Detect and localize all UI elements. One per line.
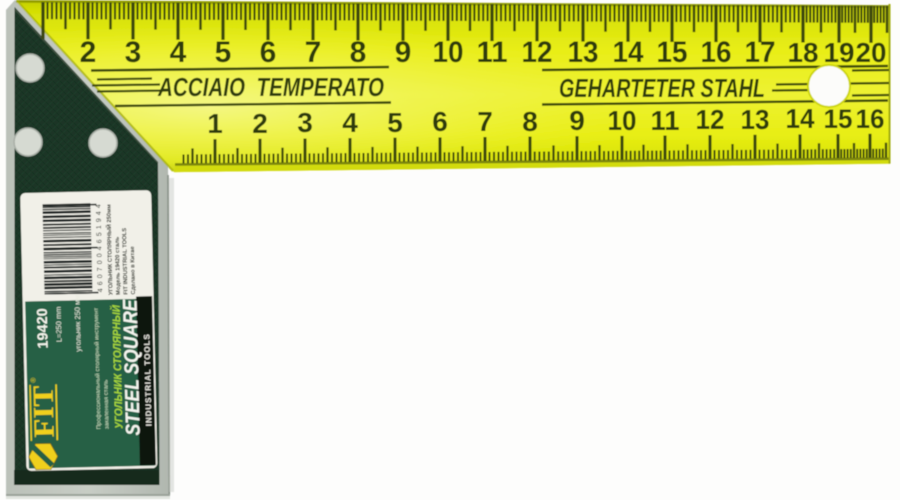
svg-text:4: 4 bbox=[170, 36, 187, 69]
svg-text:11: 11 bbox=[651, 105, 680, 136]
svg-text:10: 10 bbox=[433, 36, 464, 69]
svg-text:угольник 250 мм: угольник 250 мм bbox=[73, 294, 83, 351]
svg-text:13: 13 bbox=[568, 36, 599, 69]
svg-text:15: 15 bbox=[657, 36, 688, 69]
svg-text:8: 8 bbox=[522, 106, 538, 137]
svg-text:2: 2 bbox=[80, 36, 97, 69]
svg-text:Сделано в Китае: Сделано в Китае bbox=[130, 245, 137, 294]
svg-text:6: 6 bbox=[260, 36, 277, 69]
svg-text:19: 19 bbox=[824, 37, 855, 68]
svg-text:14: 14 bbox=[786, 103, 815, 134]
svg-text:STEEL SQUARE: STEEL SQUARE bbox=[120, 299, 145, 436]
svg-text:7: 7 bbox=[477, 106, 493, 137]
svg-text:12: 12 bbox=[696, 104, 725, 135]
svg-text:14: 14 bbox=[613, 36, 644, 69]
svg-text:GEHARTETER STAHL: GEHARTETER STAHL bbox=[559, 73, 765, 103]
svg-text:20: 20 bbox=[856, 37, 887, 68]
svg-text:8: 8 bbox=[350, 36, 367, 69]
svg-text:10: 10 bbox=[608, 105, 637, 136]
svg-text:19420: 19420 bbox=[35, 308, 52, 349]
svg-text:3: 3 bbox=[297, 107, 313, 138]
svg-text:ACCIAIO TEMPERATO: ACCIAIO TEMPERATO bbox=[157, 72, 384, 102]
svg-text:5: 5 bbox=[215, 36, 232, 69]
svg-text:11: 11 bbox=[477, 36, 508, 69]
svg-text:9: 9 bbox=[395, 36, 412, 69]
svg-text:5: 5 bbox=[387, 107, 403, 138]
svg-text:9: 9 bbox=[569, 105, 585, 136]
svg-text:L=250 mm: L=250 mm bbox=[54, 306, 64, 342]
svg-text:2: 2 bbox=[252, 108, 268, 139]
svg-text:15: 15 bbox=[824, 104, 853, 134]
svg-text:3: 3 bbox=[125, 36, 142, 69]
svg-text:18: 18 bbox=[788, 37, 819, 68]
svg-text:закаленная сталь: закаленная сталь bbox=[103, 380, 110, 430]
svg-text:12: 12 bbox=[522, 36, 553, 69]
svg-text:16: 16 bbox=[856, 104, 885, 134]
svg-text:4: 4 bbox=[342, 107, 358, 138]
svg-text:6: 6 bbox=[432, 106, 448, 137]
svg-text:1: 1 bbox=[207, 108, 223, 139]
svg-text:7: 7 bbox=[305, 36, 322, 69]
svg-text:16: 16 bbox=[701, 36, 732, 69]
svg-text:17: 17 bbox=[745, 36, 776, 69]
svg-text:13: 13 bbox=[741, 104, 770, 135]
